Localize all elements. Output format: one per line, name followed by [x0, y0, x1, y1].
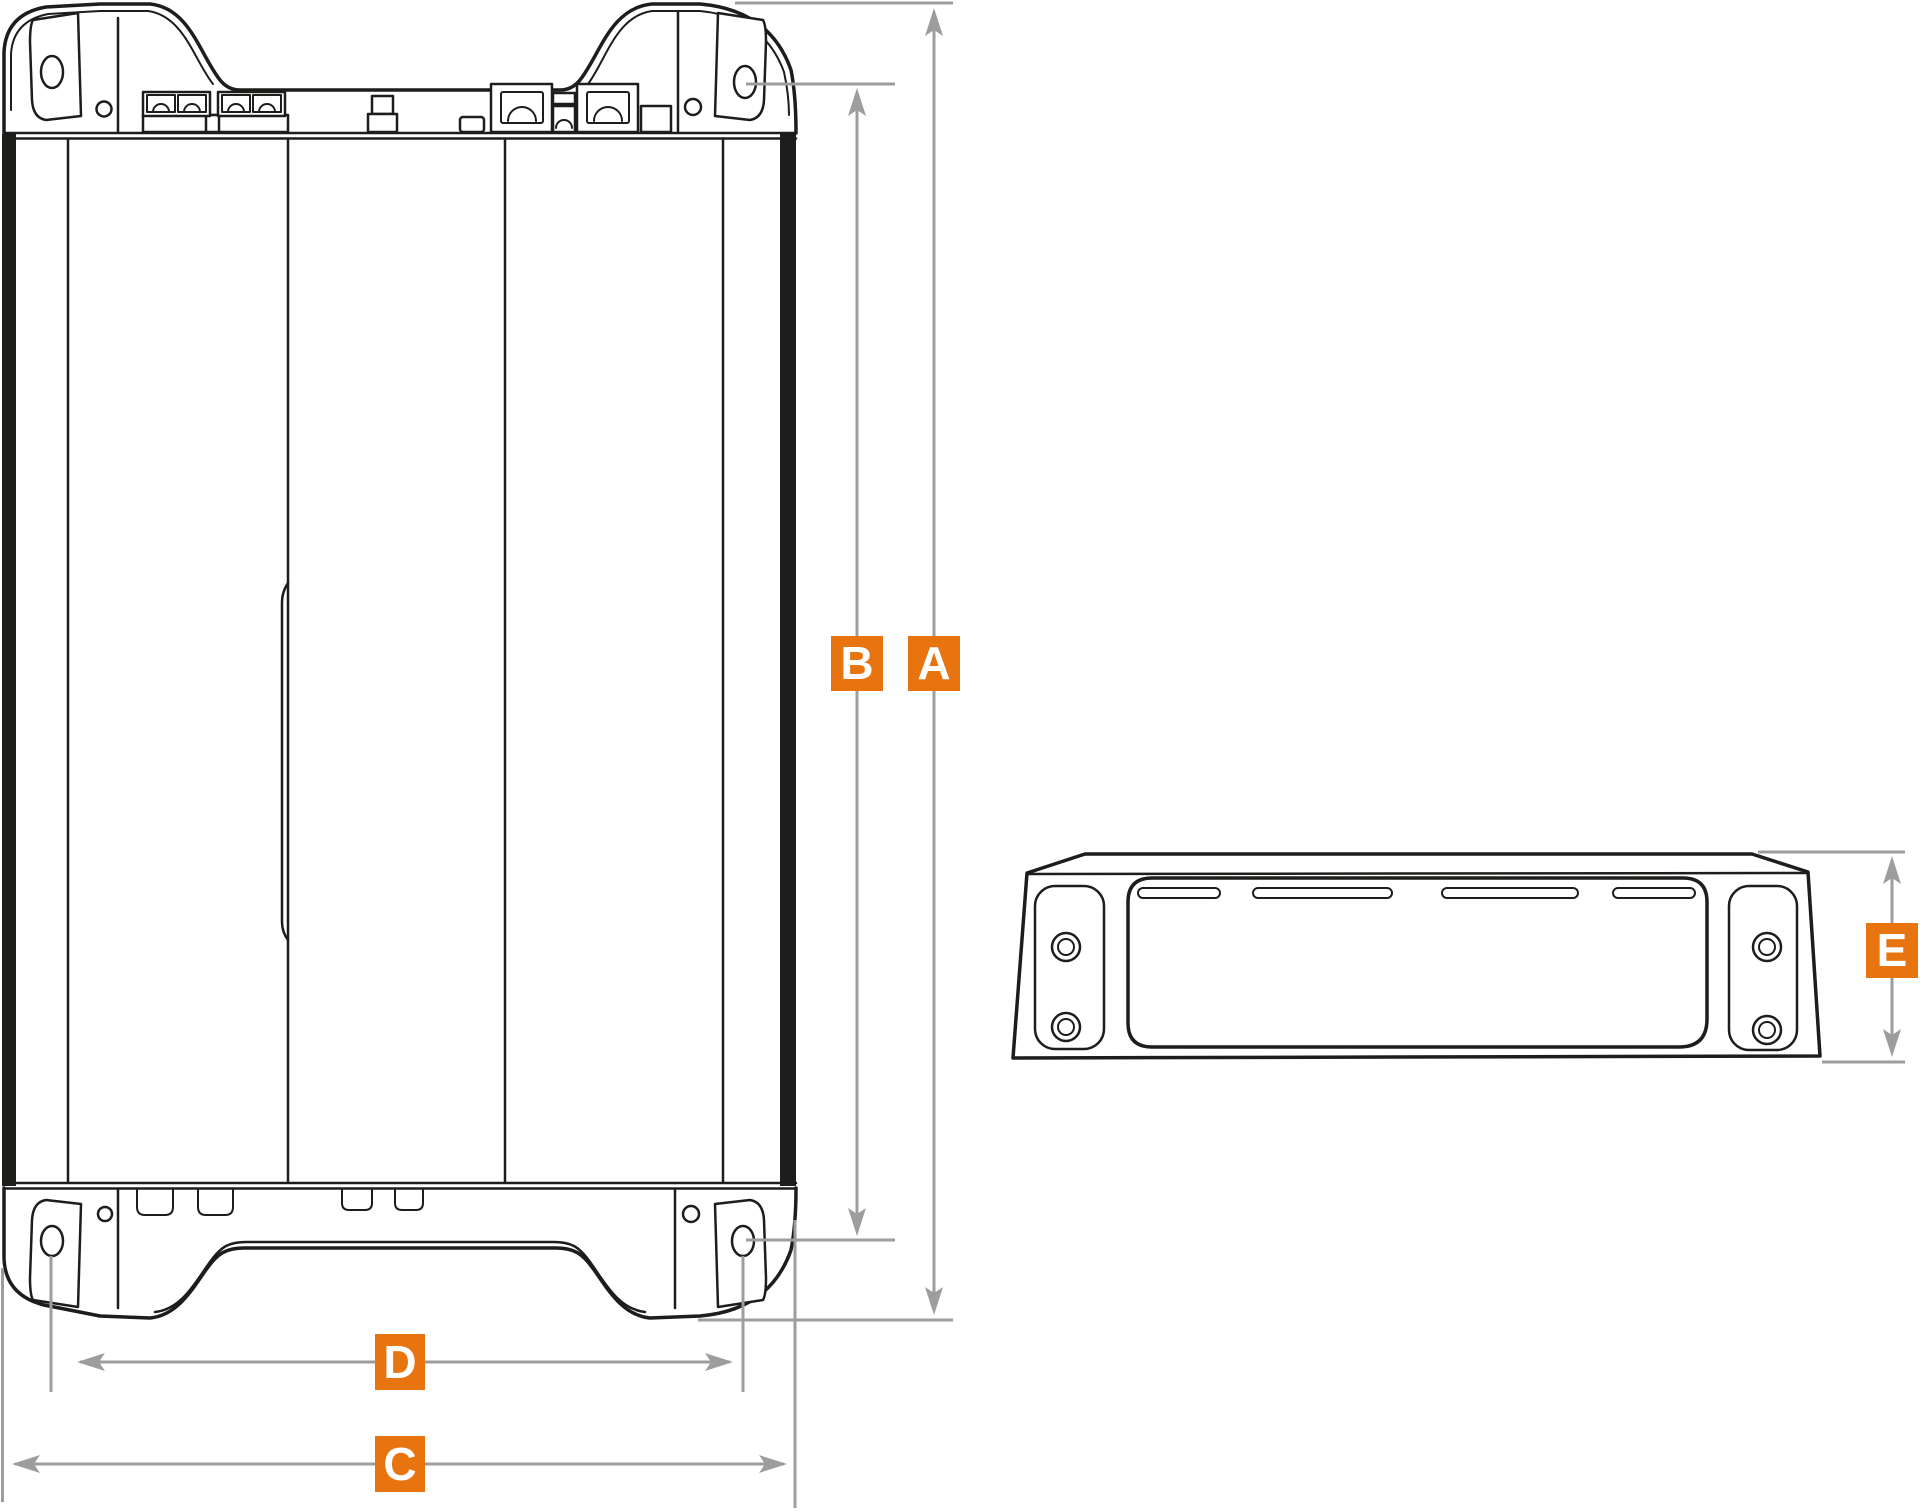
top-view-top-endcap — [4, 4, 796, 133]
screw-head — [1753, 1016, 1781, 1044]
screw-head-inner — [1759, 939, 1775, 955]
top-view-bottom-endcap — [4, 1188, 796, 1318]
top-right-pilot-hole — [685, 99, 701, 115]
technical-drawing-page: B A D C E — [0, 0, 1920, 1511]
power-stud-top — [372, 96, 393, 114]
label-d-letter: D — [383, 1336, 416, 1388]
screw-head-inner — [1058, 939, 1074, 955]
side-left-screw-plate — [1035, 886, 1104, 1049]
bottom-left-mount-bracket — [30, 1200, 81, 1307]
side-recessed-panel — [1128, 878, 1707, 1047]
label-b-letter: B — [840, 637, 873, 689]
bottom-endcap-inner-echo — [155, 1242, 645, 1312]
vent-slot-1 — [1138, 888, 1220, 898]
bottom-endcap-outline — [4, 1188, 796, 1318]
amp-top-view — [2, 4, 796, 1318]
terminal-base-notch — [206, 115, 219, 132]
side-right-screw-plate — [1729, 886, 1797, 1050]
mid-connector-top — [553, 93, 575, 104]
bottom-tab — [198, 1190, 233, 1215]
top-view-body — [2, 133, 796, 1189]
vent-slot-3 — [1442, 888, 1578, 898]
small-switch — [460, 117, 484, 132]
bottom-tab — [342, 1190, 372, 1210]
bottom-left-pilot-hole — [98, 1207, 112, 1221]
top-left-pilot-hole — [97, 102, 112, 117]
bottom-right-mount-bracket — [715, 1200, 766, 1307]
screw-head — [1052, 1013, 1080, 1041]
label-c-letter: C — [383, 1438, 416, 1490]
screw-head — [1753, 933, 1781, 961]
bottom-right-pilot-hole — [683, 1206, 699, 1222]
screw-head — [1052, 933, 1080, 961]
terminal-blocks — [143, 92, 288, 132]
aux-connector — [641, 106, 671, 132]
power-connectors — [491, 84, 671, 132]
left-fin-bar — [2, 134, 16, 1186]
amp-side-view — [1013, 854, 1820, 1058]
top-left-mount-bracket — [30, 13, 81, 120]
side-top-front-edge — [1029, 873, 1806, 874]
vent-slot-2 — [1253, 888, 1392, 898]
label-e-letter: E — [1877, 924, 1908, 976]
power-stud-base — [368, 114, 397, 132]
vent-slot-4 — [1613, 888, 1695, 898]
bottom-tab — [395, 1190, 423, 1210]
dimension-drawing: B A D C E — [0, 0, 1920, 1511]
bottom-tab — [137, 1190, 173, 1215]
dimension-labels: B A D C E — [375, 636, 1918, 1492]
right-fin-bar — [780, 134, 796, 1186]
screw-head-inner — [1759, 1022, 1775, 1038]
screw-head-inner — [1058, 1019, 1074, 1035]
label-a-letter: A — [917, 637, 950, 689]
